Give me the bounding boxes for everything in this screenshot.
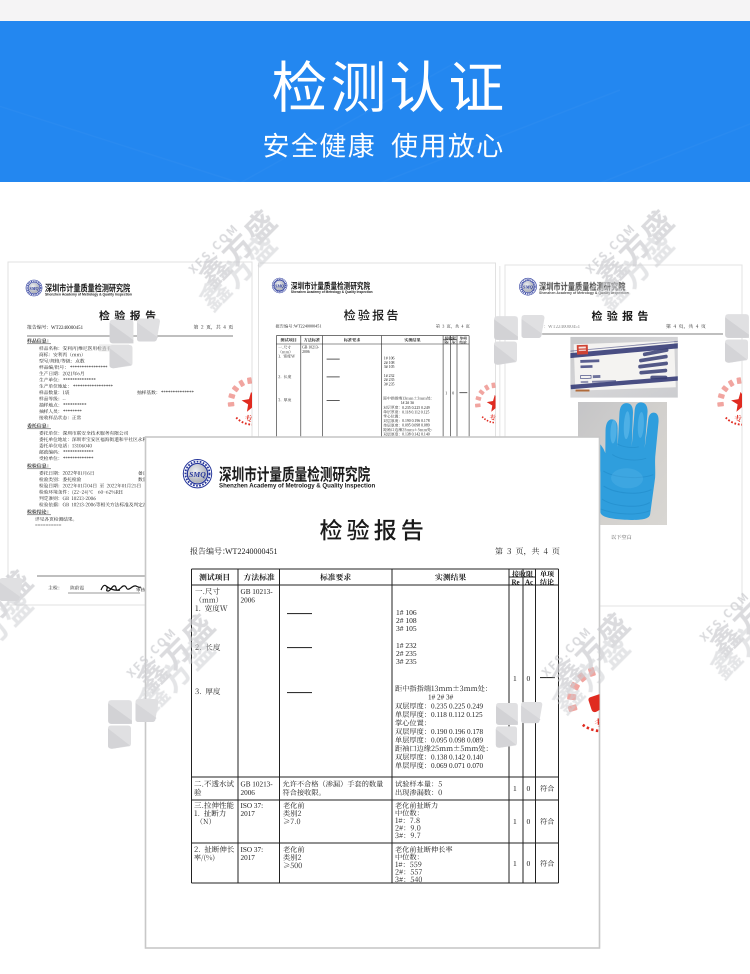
svg-text:1: 1	[513, 674, 517, 683]
svg-text:0: 0	[527, 674, 531, 683]
svg-text:3# 235: 3# 235	[396, 657, 417, 666]
svg-text:1: 1	[513, 784, 517, 793]
svg-text:WT2240000451: WT2240000451	[225, 547, 277, 556]
svg-text:SMQ: SMQ	[523, 285, 534, 290]
svg-text:0.118 0.112 0.125: 0.118 0.112 0.125	[431, 711, 483, 719]
svg-text:**************: **************	[63, 379, 96, 384]
svg-text:2017: 2017	[241, 810, 256, 818]
svg-text:1: 1	[513, 817, 517, 826]
svg-text:ISO 37:: ISO 37:	[241, 802, 264, 810]
svg-text:3# 235: 3# 235	[384, 383, 395, 387]
svg-text:0.138 0.142 0.140: 0.138 0.142 0.140	[431, 754, 484, 762]
svg-text:Shenzhen Academy of Metrology: Shenzhen Academy of Metrology & Quality …	[45, 292, 132, 296]
svg-text:**************: **************	[161, 391, 194, 396]
svg-text:Re: Re	[444, 341, 449, 345]
svg-text:ISO 37:: ISO 37:	[241, 846, 264, 854]
svg-text:SMQ: SMQ	[275, 283, 284, 288]
svg-text:0: 0	[527, 784, 531, 793]
svg-text:Re: Re	[512, 579, 520, 587]
svg-text:2006: 2006	[241, 597, 256, 605]
svg-text:0: 0	[527, 817, 531, 826]
svg-text:1# 2# 3#: 1# 2# 3#	[401, 401, 414, 405]
svg-text:0.235 0.225 0.249: 0.235 0.225 0.249	[402, 406, 430, 410]
svg-text:0.118 0.112 0.125: 0.118 0.112 0.125	[402, 410, 429, 414]
svg-text:2017: 2017	[241, 854, 256, 862]
svg-text:Shenzhen Academy of Metrology: Shenzhen Academy of Metrology & Quality …	[219, 483, 375, 490]
svg-text:0.069 0.071 0.070: 0.069 0.071 0.070	[431, 762, 484, 770]
svg-text:*************: *************	[63, 451, 94, 456]
svg-text:Ac: Ac	[452, 341, 457, 345]
svg-text:==========: ==========	[35, 524, 62, 529]
svg-text:0.235 0.225 0.249: 0.235 0.225 0.249	[431, 703, 484, 711]
svg-text:GB 10213-: GB 10213-	[302, 346, 320, 350]
svg-text:WT2240000451: WT2240000451	[51, 326, 84, 331]
svg-text:*****************: *****************	[73, 385, 114, 390]
svg-text:WT2240000451: WT2240000451	[548, 325, 581, 330]
svg-text:Ac: Ac	[525, 579, 533, 587]
svg-text:SMQ: SMQ	[189, 470, 206, 479]
svg-text:****************: ****************	[70, 366, 108, 371]
svg-text:SMQ: SMQ	[29, 286, 38, 291]
svg-text:*************: *************	[63, 457, 94, 462]
svg-text:0.095 0.098 0.089: 0.095 0.098 0.089	[431, 737, 484, 745]
svg-text:********: ********	[63, 410, 82, 415]
svg-text:WT2240000451: WT2240000451	[294, 324, 321, 329]
svg-text:3# 105: 3# 105	[384, 365, 395, 369]
svg-text:3# 105: 3# 105	[396, 624, 417, 633]
svg-text:0.190 0.196 0.178: 0.190 0.196 0.178	[431, 728, 484, 736]
svg-text:**********: **********	[63, 404, 87, 409]
svg-text:GB 10213-: GB 10213-	[241, 781, 274, 789]
svg-text:1# 2# 3#: 1# 2# 3#	[428, 694, 454, 702]
svg-text:Shenzhen Academy of Metrology: Shenzhen Academy of Metrology & Quality …	[291, 290, 373, 294]
svg-text:0.190 0.196 0.178: 0.190 0.196 0.178	[402, 419, 430, 423]
svg-text:0: 0	[527, 859, 531, 868]
svg-text:0.095 0.098 0.089: 0.095 0.098 0.089	[402, 424, 430, 428]
svg-text:2006: 2006	[302, 350, 310, 354]
svg-text:2006: 2006	[241, 789, 256, 797]
svg-text:GB 10213-: GB 10213-	[241, 588, 274, 596]
svg-text:1: 1	[513, 859, 517, 868]
svg-text:1: 1	[445, 391, 447, 395]
svg-text:0: 0	[452, 391, 454, 395]
svg-text:0.138 0.142 0.140: 0.138 0.142 0.140	[402, 433, 430, 437]
